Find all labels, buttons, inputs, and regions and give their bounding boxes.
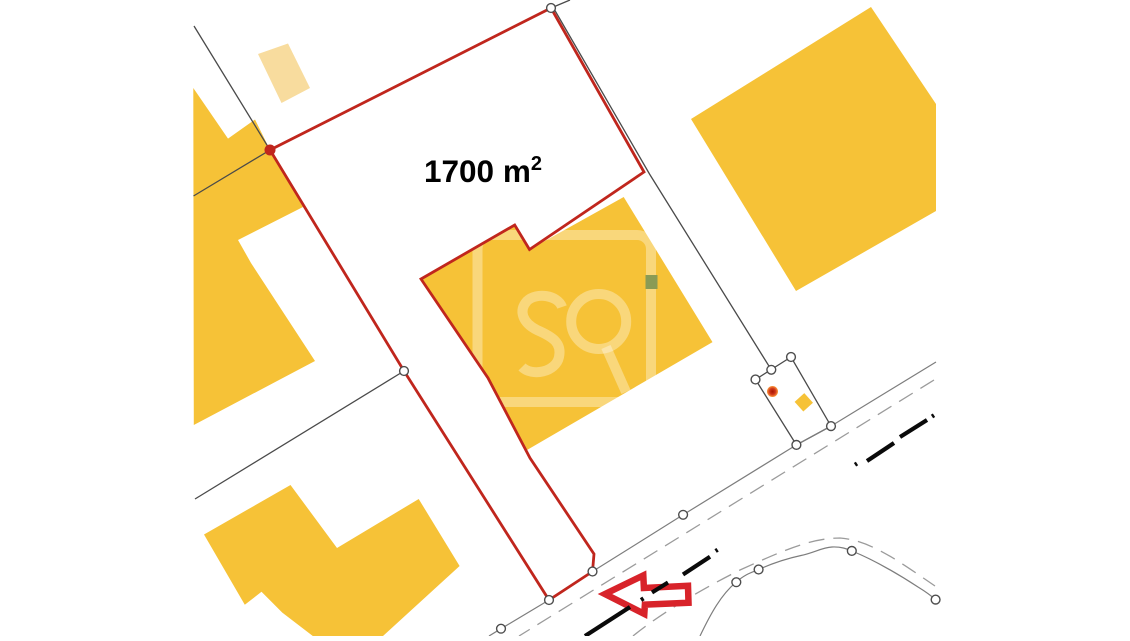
svg-text:1700 m2: 1700 m2	[424, 153, 542, 189]
